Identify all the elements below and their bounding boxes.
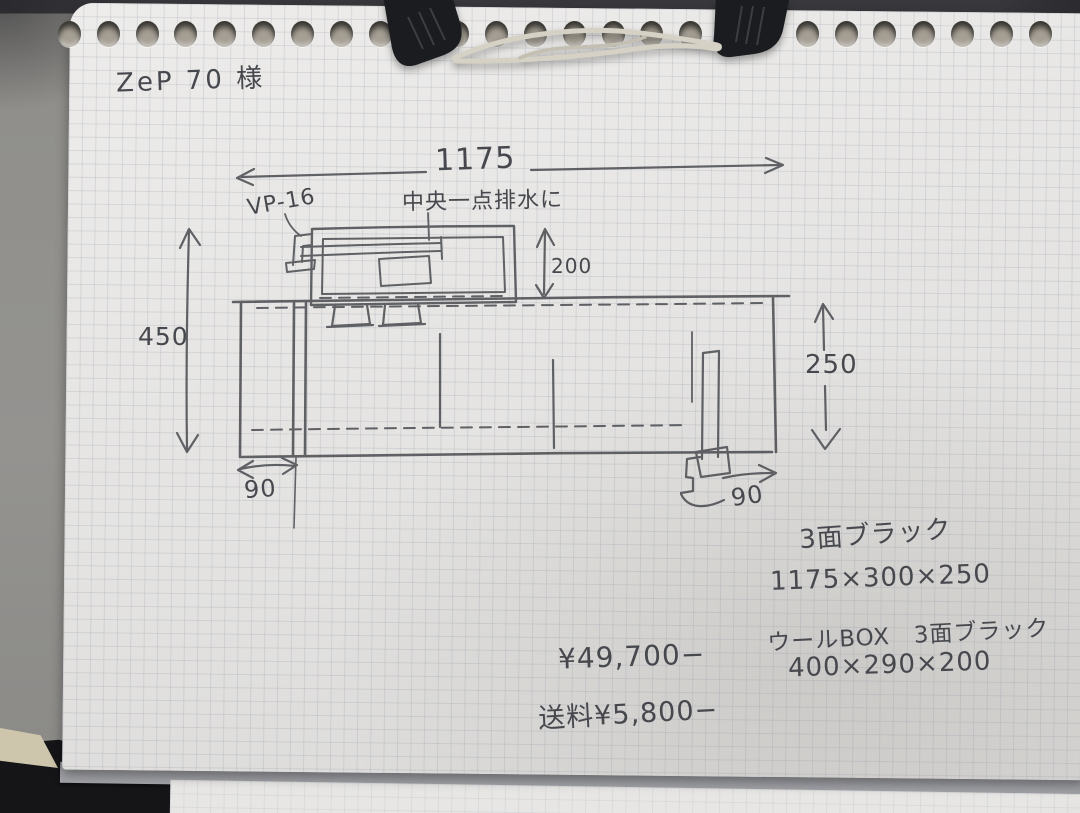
binder-clip-left-prong	[383, 0, 462, 66]
binder-clip	[0, 0, 1080, 813]
photo-of-sketch: ZeP 70 様 1175 中央一点排水に VP-16 200 450 250 …	[0, 0, 1080, 813]
binder-clip-wire-handle	[452, 30, 722, 63]
binder-clip-right-prong	[714, 0, 790, 57]
